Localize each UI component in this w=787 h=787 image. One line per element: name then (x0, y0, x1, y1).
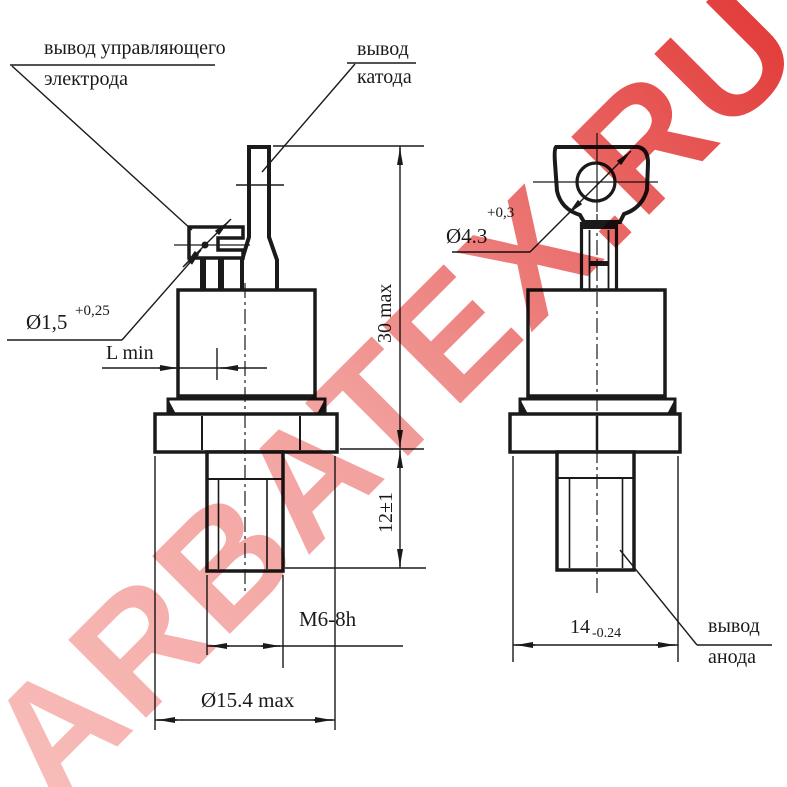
dim-lug-hole: Ø4.3 (446, 225, 487, 248)
technical-drawing-linework (0, 0, 787, 787)
dim-lug-hole-tolerance: +0,3 (487, 205, 514, 222)
anode-lead-label-line2: анода (708, 646, 756, 668)
dim-height-30-max: 30 max (374, 284, 396, 343)
anode-lead-label-line1: вывод (708, 615, 760, 637)
dim-flange-diameter: Ø15.4 max (201, 689, 294, 712)
cathode-lead-label-line2: катода (357, 66, 412, 88)
dim-l-min: L min (106, 342, 154, 364)
dim-gate-hole: Ø1,5 (26, 311, 67, 334)
cathode-lead-label-line1: вывод (357, 38, 409, 60)
dim-across-flats: 14 (570, 616, 590, 638)
right-view (510, 133, 680, 570)
dim-stud-length: 12±1 (375, 492, 397, 533)
gate-lead-label-line2: электрода (44, 68, 128, 90)
thyristor-outline-drawing: вывод управляющего электрода вывод катод… (0, 0, 787, 787)
dim-gate-hole-tolerance: +0,25 (75, 303, 110, 320)
gate-lead-label-line1: вывод управляющего (44, 37, 226, 59)
dim-thread: M6-8h (299, 608, 356, 631)
dim-across-flats-tolerance: -0.24 (592, 626, 621, 642)
left-view (155, 147, 337, 571)
